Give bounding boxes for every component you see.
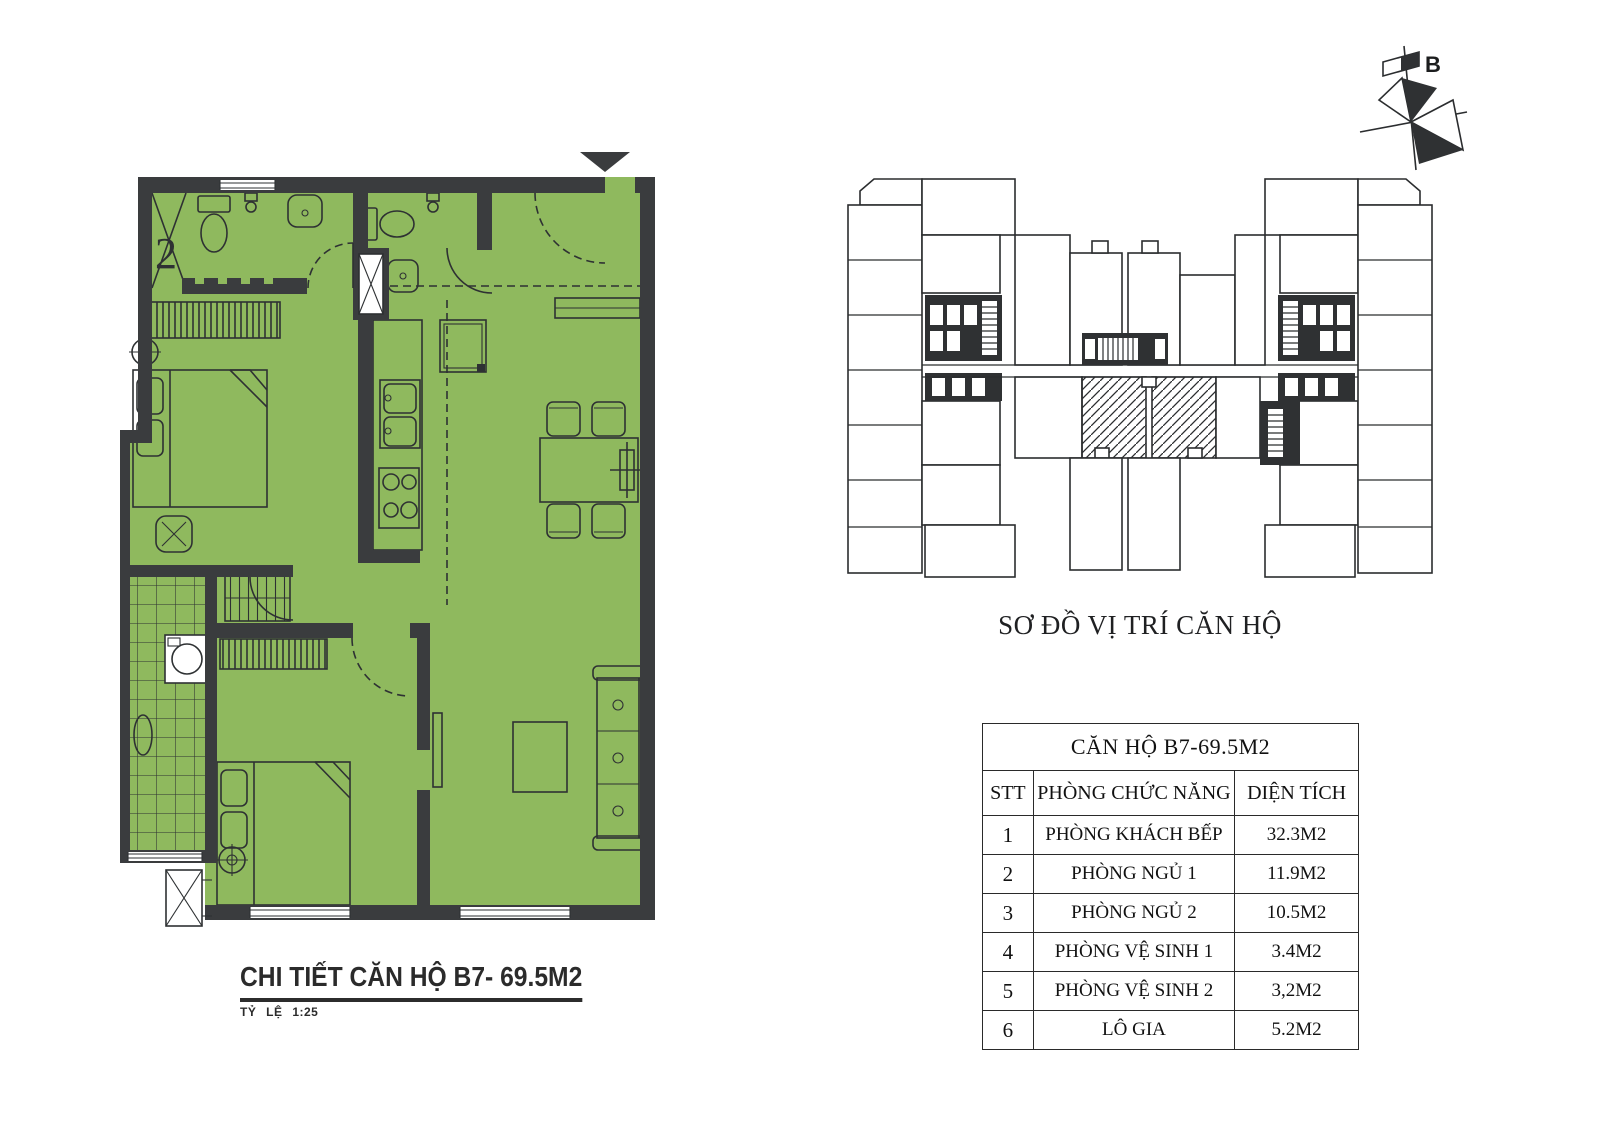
hatched-core-area (1082, 377, 1216, 458)
entrance-arrow-icon (580, 152, 630, 172)
detail-plan-scale: TỶ LỆ 1:25 (240, 1005, 629, 1019)
detail-floor-plan: 2 (100, 130, 700, 930)
stair-core (1082, 333, 1168, 365)
row-index: 4 (983, 933, 1034, 972)
table-title-row: CĂN HỘ B7-69.5M2 (983, 724, 1359, 771)
row-index: 5 (983, 972, 1034, 1011)
closet-rack (225, 575, 290, 621)
detail-plan-caption: CHI TIẾT CĂN HỘ B7- 69.5M2 TỶ LỆ 1:25 (240, 961, 629, 1019)
washing-machine-icon (165, 635, 210, 683)
stair-core (925, 295, 1002, 401)
table-row: 1PHÒNG KHÁCH BẾP32.3M2 (983, 816, 1359, 855)
row-index: 6 (983, 1011, 1034, 1050)
table-row: 6LÔ GIA5.2M2 (983, 1011, 1359, 1050)
room-area: 5.2M2 (1235, 1011, 1359, 1050)
compass-north-label: B (1425, 52, 1441, 77)
room-name: PHÒNG NGỦ 2 (1033, 894, 1234, 933)
row-index: 3 (983, 894, 1034, 933)
table-row: 5PHÒNG VỆ SINH 23,2M2 (983, 972, 1359, 1011)
page: 2 (0, 0, 1600, 1131)
room-name: PHÒNG NGỦ 1 (1033, 855, 1234, 894)
room-area: 10.5M2 (1235, 894, 1359, 933)
col-stt: STT (983, 771, 1034, 816)
room-area: 3.4M2 (1235, 933, 1359, 972)
overview-title: SƠ ĐỒ VỊ TRÍ CĂN HỘ (830, 610, 1450, 641)
table-row: 2PHÒNG NGỦ 111.9M2 (983, 855, 1359, 894)
shaft-icon (353, 248, 389, 320)
area-table: CĂN HỘ B7-69.5M2 STTPHÒNG CHỨC NĂNGDIỆN … (982, 723, 1359, 1050)
compass-icon: B (1345, 40, 1475, 175)
wardrobe-icon (150, 302, 280, 338)
building-location-diagram (830, 165, 1450, 595)
unit-block (1358, 179, 1432, 573)
room-area: 3,2M2 (1235, 972, 1359, 1011)
col-room: PHÒNG CHỨC NĂNG (1033, 771, 1234, 816)
room-name: PHÒNG KHÁCH BẾP (1033, 816, 1234, 855)
room-area: 11.9M2 (1235, 855, 1359, 894)
room-name: LÔ GIA (1033, 1011, 1234, 1050)
wardrobe-icon (220, 639, 327, 669)
detail-plan-title: CHI TIẾT CĂN HỘ B7- 69.5M2 (240, 961, 582, 992)
table-title: CĂN HỘ B7-69.5M2 (983, 724, 1359, 771)
room-area: 32.3M2 (1235, 816, 1359, 855)
unit-block (848, 179, 922, 573)
col-area: DIỆN TÍCH (1235, 771, 1359, 816)
table-header-row: STTPHÒNG CHỨC NĂNGDIỆN TÍCH (983, 771, 1359, 816)
area-table-body: 1PHÒNG KHÁCH BẾP32.3M22PHÒNG NGỦ 111.9M2… (983, 816, 1359, 1050)
table-row: 4PHÒNG VỆ SINH 13.4M2 (983, 933, 1359, 972)
room2-label: 2 (155, 229, 177, 278)
row-index: 1 (983, 816, 1034, 855)
room-name: PHÒNG VỆ SINH 1 (1033, 933, 1234, 972)
row-index: 2 (983, 855, 1034, 894)
table-row: 3PHÒNG NGỦ 210.5M2 (983, 894, 1359, 933)
room-name: PHÒNG VỆ SINH 2 (1033, 972, 1234, 1011)
